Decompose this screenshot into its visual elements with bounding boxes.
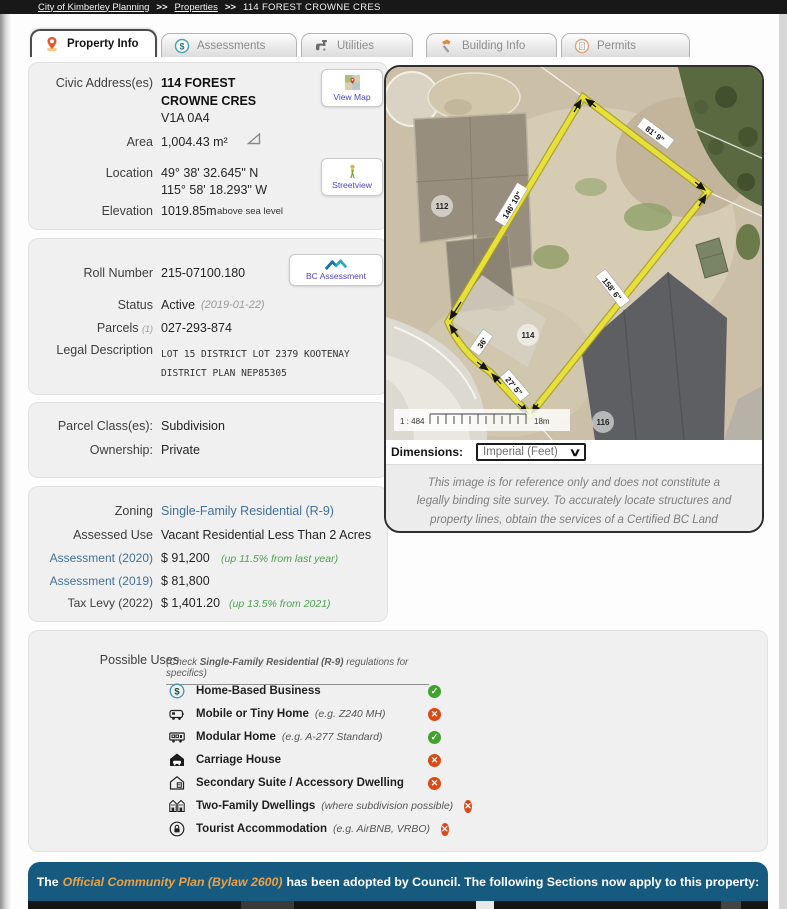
use-note: (e.g. Z240 MH) (315, 708, 386, 720)
parcels-value: 027-293-874 (161, 321, 232, 335)
breadcrumb-separator: >> (156, 2, 167, 13)
ownership-label: Ownership: (29, 443, 153, 457)
parcel-class-card: Parcel Class(es): Subdivision Ownership:… (28, 402, 388, 478)
parcel-map-panel: 81' 9" 146' 10" 158' 6" 36' 27' 5" 112 1… (384, 65, 764, 533)
lot-number: 112 (436, 202, 449, 211)
roll-number-value: 215-07100.180 (161, 266, 245, 280)
use-row-carriage-house: Carriage House ✕ (169, 750, 441, 770)
use-label: Mobile or Tiny Home (196, 708, 309, 720)
parcels-label: Parcels (1) (29, 321, 153, 335)
map-scale-bar: 1 : 484 18m (394, 409, 570, 431)
tab-label: Building Info (462, 40, 525, 52)
view-map-button[interactable]: View Map (321, 69, 383, 107)
dollar-circle-icon: $ (174, 38, 190, 54)
possible-uses-card: Possible Uses (Check Single-Family Resid… (28, 630, 768, 852)
banner-suffix: has been adopted by Council. The followi… (286, 875, 759, 889)
assessment-2020-link[interactable]: Assessment (2020) (29, 551, 153, 565)
breadcrumb-link-properties[interactable]: Properties (175, 2, 218, 13)
ocp-link[interactable]: Official Community Plan (Bylaw 2600) (59, 875, 287, 889)
use-row-two-family: Two-Family Dwellings (where subdivision … (169, 796, 441, 816)
scale-distance: 18m (534, 417, 550, 426)
dimensions-selected-value: Imperial (Feet) (483, 446, 558, 458)
legal-description-value: LOT 15 DISTRICT LOT 2379 KOOTENAY DISTRI… (161, 345, 373, 383)
parcel-class-value: Subdivision (161, 419, 225, 433)
tab-label: Property Info (67, 38, 139, 50)
area-triangle-icon[interactable] (247, 133, 261, 148)
bc-assessment-label: BC Assessment (306, 271, 366, 281)
ocp-banner: The Official Community Plan (Bylaw 2600)… (28, 862, 768, 902)
status-x-icon: ✕ (428, 708, 441, 721)
breadcrumb: City of Kimberley Planning >> Properties… (0, 0, 787, 14)
zoning-card: Zoning Single-Family Residential (R-9) A… (28, 486, 388, 622)
duplex-icon (169, 798, 185, 814)
view-map-label: View Map (333, 92, 370, 102)
use-label: Tourist Accommodation (196, 823, 327, 835)
dollar-circle-icon: $ (169, 683, 185, 699)
postal-code: V1A 0A4 (161, 111, 210, 125)
tab-utilities[interactable]: Utilities (301, 33, 413, 57)
use-label: Two-Family Dwellings (196, 800, 315, 812)
secondary-suite-icon (169, 775, 185, 791)
lock-circle-icon (169, 821, 185, 837)
possible-uses-title: Possible Uses (51, 653, 179, 667)
status-value: Active (161, 298, 195, 312)
tab-label: Permits (597, 40, 636, 52)
status-x-icon: ✕ (441, 823, 449, 836)
use-row-mobile-home: Mobile or Tiny Home (e.g. Z240 MH) ✕ (169, 704, 441, 724)
use-label: Modular Home (196, 731, 276, 743)
view-map-icon (344, 74, 361, 91)
use-row-home-based-business: $ Home-Based Business ✓ (169, 681, 441, 701)
civic-address-label: Civic Address(es) (29, 76, 153, 90)
status-x-icon: ✕ (464, 800, 472, 813)
breadcrumb-current: 114 FOREST CROWNE CRES (243, 2, 381, 13)
use-label: Home-Based Business (196, 685, 321, 697)
tab-assessments[interactable]: $ Assessments (161, 33, 297, 57)
use-row-tourist-accommodation: Tourist Accommodation (e.g. AirBNB, VRBO… (169, 819, 441, 839)
area-label: Area (29, 135, 153, 149)
svg-text:$: $ (179, 41, 184, 51)
property-info-page: City of Kimberley Planning >> Properties… (0, 0, 787, 909)
streetview-button[interactable]: Streetview (321, 158, 383, 196)
assessment-2020-note: (up 11.5% from last year) (221, 553, 338, 565)
banner-prefix: The (37, 875, 59, 889)
scale-ratio: 1 : 484 (400, 417, 425, 426)
hammer-icon (439, 38, 455, 54)
zoning-label: Zoning (29, 504, 153, 518)
assessment-2019-value: $ 81,800 (161, 574, 210, 588)
status-x-icon: ✕ (428, 777, 441, 790)
assessment-2020-value: $ 91,200 (161, 551, 210, 565)
use-note: (where subdivision possible) (321, 800, 453, 812)
modular-home-icon (169, 729, 185, 745)
lot-number: 114 (522, 331, 535, 340)
page-right-edge (779, 14, 787, 909)
location-label: Location (29, 166, 153, 180)
assessed-use-value: Vacant Residential Less Than 2 Acres (161, 528, 371, 542)
civic-address-value: 114 FOREST CROWNE CRES (161, 74, 291, 110)
lot-number: 116 (597, 418, 610, 427)
latitude-value: 49° 38' 32.645" N (161, 166, 258, 180)
status-label: Status (29, 298, 153, 312)
address-card: Civic Address(es) 114 FOREST CROWNE CRES… (28, 62, 388, 230)
area-value: 1,004.43 m² (161, 135, 228, 149)
tab-property-info[interactable]: Property Info (30, 29, 157, 57)
status-x-icon: ✕ (428, 754, 441, 767)
map-pin-icon (44, 36, 60, 52)
ownership-value: Private (161, 443, 200, 457)
bc-assessment-roof-icon (324, 259, 348, 270)
zone-name-bold: Single-Family Residential (R-9) (200, 657, 344, 668)
aerial-map-svg: 81' 9" 146' 10" 158' 6" 36' 27' 5" 112 1… (386, 67, 764, 440)
streetview-label: Streetview (332, 180, 372, 190)
tab-label: Assessments (197, 40, 265, 52)
use-note: (e.g. AirBNB, VRBO) (333, 823, 430, 835)
use-row-modular-home: Modular Home (e.g. A-277 Standard) ✓ (169, 727, 441, 747)
next-section-strip (28, 901, 768, 909)
assessed-use-label: Assessed Use (29, 528, 153, 542)
use-label: Carriage House (196, 754, 281, 766)
aerial-map-image[interactable]: 81' 9" 146' 10" 158' 6" 36' 27' 5" 112 1… (386, 67, 762, 440)
tab-building-info[interactable]: Building Info (426, 33, 557, 57)
tax-levy-value: $ 1,401.20 (161, 596, 220, 610)
pegman-icon (345, 164, 360, 179)
use-label: Secondary Suite / Accessory Dwelling (196, 777, 404, 789)
breadcrumb-link-home[interactable]: City of Kimberley Planning (38, 2, 149, 13)
status-date: (2019-01-22) (201, 299, 265, 311)
roll-number-label: Roll Number (29, 266, 153, 280)
elevation-suffix: above sea level (217, 206, 283, 217)
assessment-2019-link[interactable]: Assessment (2019) (29, 574, 153, 588)
tab-permits[interactable]: Permits (561, 33, 690, 57)
status-check-icon: ✓ (428, 731, 441, 744)
elevation-value: 1019.85m (161, 204, 217, 218)
dimensions-dropdown[interactable]: Imperial (Feet) ∨ (476, 443, 586, 461)
svg-text:$: $ (174, 687, 180, 698)
tax-levy-label: Tax Levy (2022) (29, 596, 153, 610)
status-check-icon: ✓ (428, 685, 441, 698)
longitude-value: 115° 58' 18.293" W (161, 183, 267, 197)
page-left-edge (0, 14, 11, 909)
strip-segment (476, 901, 494, 909)
strip-segment (241, 901, 294, 909)
strip-segment (721, 901, 741, 909)
chevron-down-icon: ∨ (569, 446, 582, 459)
bc-assessment-button[interactable]: BC Assessment (289, 254, 383, 286)
faucet-icon (314, 38, 330, 54)
breadcrumb-separator: >> (225, 2, 236, 13)
elevation-label: Elevation (29, 204, 153, 218)
parcel-class-label: Parcel Class(es): (29, 419, 153, 433)
dimensions-row: Dimensions: Imperial (Feet) ∨ (386, 440, 762, 464)
map-disclaimer: This image is for reference only and doe… (386, 464, 762, 533)
dimensions-label: Dimensions: (391, 445, 463, 459)
zoning-link[interactable]: Single-Family Residential (R-9) (161, 504, 334, 518)
carriage-house-icon (169, 752, 185, 768)
tax-levy-note: (up 13.5% from 2021) (229, 598, 331, 610)
tab-label: Utilities (337, 40, 374, 52)
use-note: (e.g. A-277 Standard) (282, 731, 383, 743)
legal-description-label: Legal Description (29, 343, 153, 357)
use-row-secondary-suite: Secondary Suite / Accessory Dwelling ✕ (169, 773, 441, 793)
document-icon (574, 38, 590, 54)
camper-icon (169, 706, 185, 722)
roll-card: Roll Number 215-07100.180 Status Active … (28, 238, 388, 395)
